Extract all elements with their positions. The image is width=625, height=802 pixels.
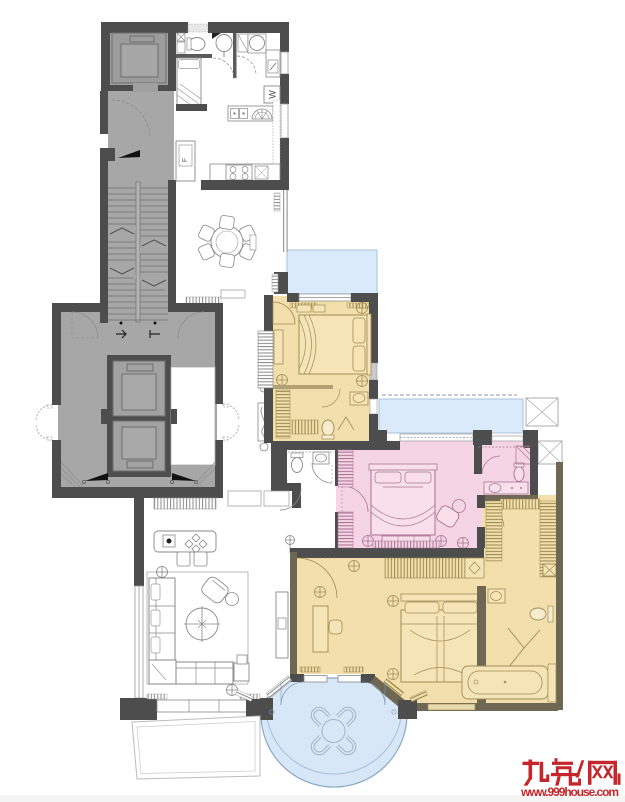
svg-text:www.999house.com: www.999house.com (520, 785, 619, 799)
svg-text:W: W (268, 90, 278, 99)
svg-text:F: F (182, 158, 189, 162)
